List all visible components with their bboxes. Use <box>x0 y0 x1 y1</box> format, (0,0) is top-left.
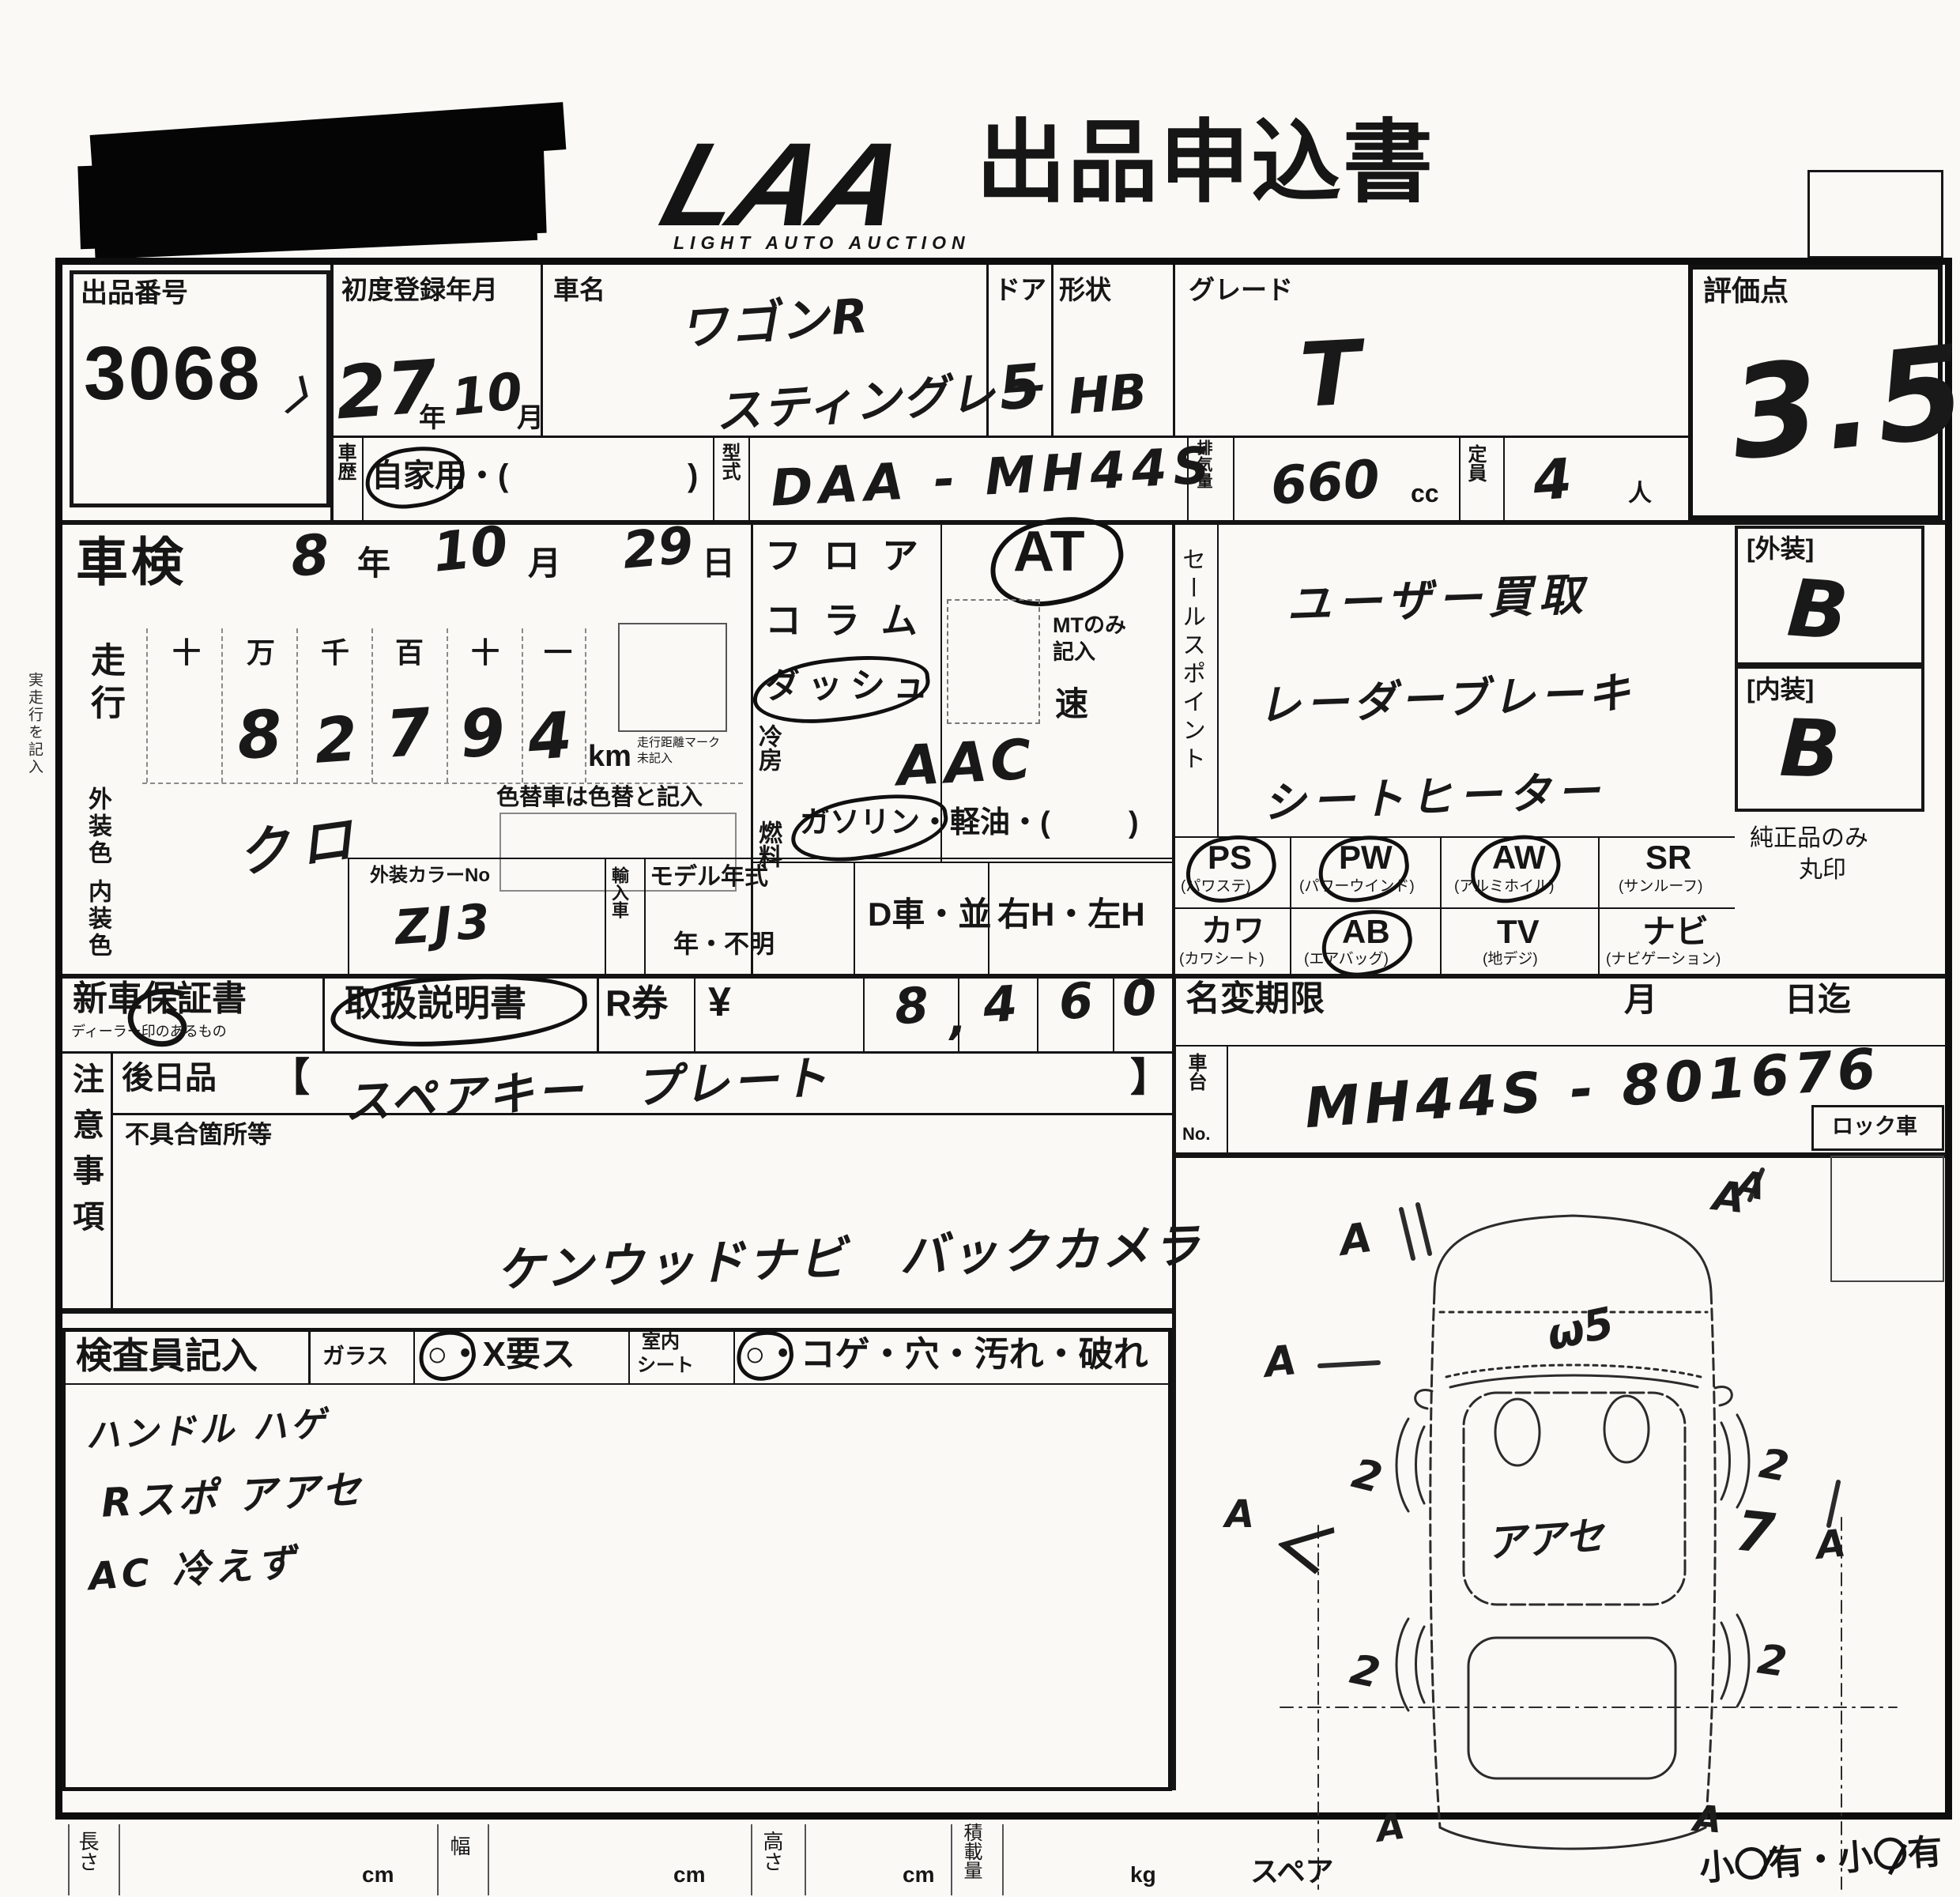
rename-until: 日迄 <box>1785 983 1851 1016</box>
km-note-line2: 未記入 <box>637 752 673 764</box>
repaint-note: 色替車は色替と記入 <box>496 786 703 809</box>
mileage-label: 走行 <box>87 642 122 727</box>
auction-sheet-scan: LAA LIGHT AUTO AUCTION 出品申込書 出品番号 3068 〉… <box>0 0 1960 1897</box>
car-name-line1: ワゴンR <box>678 292 873 353</box>
damage-a-mark: A <box>1259 1337 1298 1387</box>
fuel-close-paren: ) <box>1129 808 1139 838</box>
lot-number-label: 出品番号 <box>81 280 188 307</box>
interior-color-label: 内装色 <box>85 879 109 960</box>
rear-left-mark: ＜ <box>1262 1510 1336 1589</box>
spare-label: スペア <box>1250 1857 1333 1886</box>
recycle-ticket-label: R券 <box>605 985 668 1021</box>
door-label: ドア <box>994 277 1046 303</box>
grade-label: グレード <box>1189 277 1293 303</box>
lot-number-value: 3068 <box>84 336 262 412</box>
ac-value: AAC <box>895 731 1037 794</box>
displacement-unit: cc <box>1411 481 1439 506</box>
chassis-no-suffix: No. <box>1182 1126 1210 1143</box>
header-empty-box <box>1807 170 1943 258</box>
page-title: 出品申込書 <box>976 119 1434 209</box>
load-unit: kg <box>1130 1864 1156 1886</box>
width-unit: cm <box>673 1864 705 1886</box>
rear-left-a-mark: A <box>1222 1492 1254 1537</box>
warranty-hand-mark <box>107 984 209 1051</box>
damage-a-mark: A <box>1333 1214 1374 1266</box>
shaken-month-unit: 月 <box>528 547 561 580</box>
lot-tick-mark: 〉 <box>284 375 330 422</box>
laa-logo: LAA <box>650 125 914 243</box>
sales-point-label: セールスポイント <box>1179 547 1203 775</box>
exterior-grade-value: B <box>1785 568 1851 651</box>
shaken-day-value: 29 <box>620 520 695 577</box>
damage-a-mark: A <box>1811 1521 1848 1568</box>
mileage-digit: 2 <box>312 708 360 773</box>
genuine-parts-note-line1: 純正品のみ <box>1750 827 1868 850</box>
shaken-year-value: 8 <box>289 526 331 584</box>
digit-header: 百 <box>395 639 424 667</box>
car-name-label: 車名 <box>553 277 605 303</box>
equip-name-tv: (地デジ) <box>1483 952 1538 967</box>
car-damage-diagram: A A A 2 2 2 2 ω5 アアセ A ＜ 7 A A A A <box>1209 1154 1960 1897</box>
shaken-label: 車検 <box>76 536 187 588</box>
shape-value: HB <box>1067 368 1148 422</box>
margin-note: 実走行を記入 <box>27 672 42 776</box>
later-items-open-bracket: 【 <box>270 1058 310 1097</box>
wheel-mark: 2 <box>1347 1450 1387 1503</box>
color-no-value: ZJ3 <box>394 898 496 952</box>
height-unit: cm <box>903 1864 934 1886</box>
first-reg-month-value: 10 <box>450 367 525 424</box>
equip-name-navi: (ナビゲーション) <box>1606 952 1721 967</box>
exterior-color-label: 外装色 <box>85 786 109 867</box>
price-comma: , <box>950 998 967 1042</box>
digit-header: 十 <box>471 639 499 667</box>
ac-label: 冷房 <box>756 724 779 771</box>
height-label: 高さ <box>762 1831 782 1872</box>
genuine-parts-note-line2: 丸印 <box>1799 858 1846 882</box>
mt-note-line2: 記入 <box>1053 642 1095 663</box>
shaken-day-unit: 日 <box>702 547 735 580</box>
first-reg-label: 初度登録年月 <box>341 277 498 303</box>
rear-right-mark: 7 <box>1732 1498 1777 1567</box>
sales-point-line1: ユーザー買取 <box>1286 573 1590 628</box>
score-value: 3.5 <box>1724 328 1960 479</box>
door-value: 5 <box>997 356 1043 419</box>
yen-sign: ¥ <box>708 982 731 1023</box>
year-unknown: 年・不明 <box>673 931 775 956</box>
displacement-label: 排気量 <box>1195 439 1211 489</box>
position-column: コラム <box>765 602 940 639</box>
mileage-digit: 8 <box>235 702 285 770</box>
digit-header: 十 <box>172 639 201 667</box>
position-floor: フロア <box>765 537 940 574</box>
seat-label-line2: シート <box>637 1356 694 1375</box>
handle-options: 右H・左H <box>997 898 1145 931</box>
price-digit: 4 <box>982 979 1019 1031</box>
rename-deadline-label: 名変期限 <box>1185 982 1325 1016</box>
color-no-label: 外装カラーNo <box>370 866 490 885</box>
later-items-close-bracket: 】 <box>1130 1058 1170 1097</box>
price-digit: 6 <box>1057 976 1094 1027</box>
seat-label-line1: 室内 <box>642 1333 680 1352</box>
length-unit: cm <box>362 1864 394 1886</box>
mileage-digit: 7 <box>383 700 433 768</box>
first-reg-month-unit: 月 <box>517 405 544 432</box>
history-label: 車歴 <box>335 443 354 481</box>
price-digit: 0 <box>1121 973 1157 1023</box>
defect-label: 不具合箇所等 <box>125 1122 272 1147</box>
interior-grade-value: B <box>1778 709 1841 790</box>
rename-month-unit: 月 <box>1624 983 1657 1016</box>
caution-label: 注意事項 <box>70 1062 101 1246</box>
laa-logo-text: LAA <box>649 118 916 251</box>
digit-header: 万 <box>247 639 275 667</box>
capacity-label: 定員 <box>1465 444 1484 482</box>
center-damage-mark: アアセ <box>1485 1513 1608 1567</box>
capacity-unit: 人 <box>1628 482 1652 506</box>
model-code-label: 型式 <box>719 443 738 481</box>
length-label: 長さ <box>77 1831 98 1872</box>
displacement-value: 660 <box>1269 453 1381 512</box>
chassis-no-label: 車台 <box>1185 1053 1204 1091</box>
dealer-car-options: D車・並 <box>868 898 991 931</box>
mileage-digit: 9 <box>458 700 507 768</box>
capacity-value: 4 <box>1532 451 1574 508</box>
equip-code-tv: TV <box>1497 915 1540 948</box>
wheel-mark: 2 <box>1755 1635 1789 1686</box>
damage-a-mark: A <box>1690 1797 1723 1842</box>
width-label: 幅 <box>449 1835 469 1856</box>
inspector-label: 検査員記入 <box>76 1337 258 1374</box>
sales-point-line3: シートヒーター <box>1262 770 1607 824</box>
wheel-mark: 2 <box>1346 1646 1384 1698</box>
digit-header: 一 <box>544 639 572 667</box>
mileage-empty-box <box>618 623 727 732</box>
shape-label: 形状 <box>1059 277 1111 303</box>
km-note-line1: 走行距離マーク <box>637 737 720 749</box>
wheel-mark: 2 <box>1756 1440 1792 1492</box>
damage-a-mark: A <box>1371 1804 1408 1850</box>
km-label: km <box>588 741 631 771</box>
mt-note-line1: MTのみ <box>1053 615 1126 636</box>
grade-value: T <box>1298 329 1363 421</box>
shaken-year-unit: 年 <box>357 547 390 580</box>
price-digit: 8 <box>893 981 930 1032</box>
load-label: 積載量 <box>961 1823 980 1880</box>
equip-code-sr: SR <box>1645 841 1691 874</box>
equip-code-kawa: カワ <box>1201 915 1265 947</box>
later-items-label: 後日品 <box>122 1062 217 1094</box>
glass-label: ガラス <box>322 1345 388 1367</box>
exterior-grade-label: [外装] <box>1747 536 1814 561</box>
lock-car-label: ロック車 <box>1832 1116 1917 1137</box>
history-close-paren: ) <box>688 460 698 492</box>
roof-damage-mark: ω5 <box>1543 1298 1619 1360</box>
interior-grade-label: [内装] <box>1747 677 1814 702</box>
shaken-month-value: 10 <box>431 519 511 581</box>
sales-point-line2: レーダーブレーキ <box>1257 672 1635 728</box>
digit-header: 千 <box>321 639 349 667</box>
equip-name-kawa: (カワシート) <box>1179 952 1265 967</box>
equip-code-navi: ナビ <box>1642 915 1709 948</box>
mt-speed-empty-box <box>947 599 1040 724</box>
equip-name-sr: (サンルーフ) <box>1619 879 1703 894</box>
seat-options: ○・コゲ・穴・汚れ・破れ <box>744 1337 1148 1372</box>
import-car-label: 輸入車 <box>610 866 628 918</box>
damage-a-mark: A <box>1732 1161 1769 1209</box>
first-reg-year-unit: 年 <box>419 405 446 432</box>
speed-suffix: 速 <box>1055 688 1088 721</box>
mileage-digit: 4 <box>526 703 574 770</box>
fuel-label: 燃料 <box>756 820 779 868</box>
laa-logo-subtitle: LIGHT AUTO AUCTION <box>673 234 971 252</box>
score-label: 評価点 <box>1703 277 1788 305</box>
